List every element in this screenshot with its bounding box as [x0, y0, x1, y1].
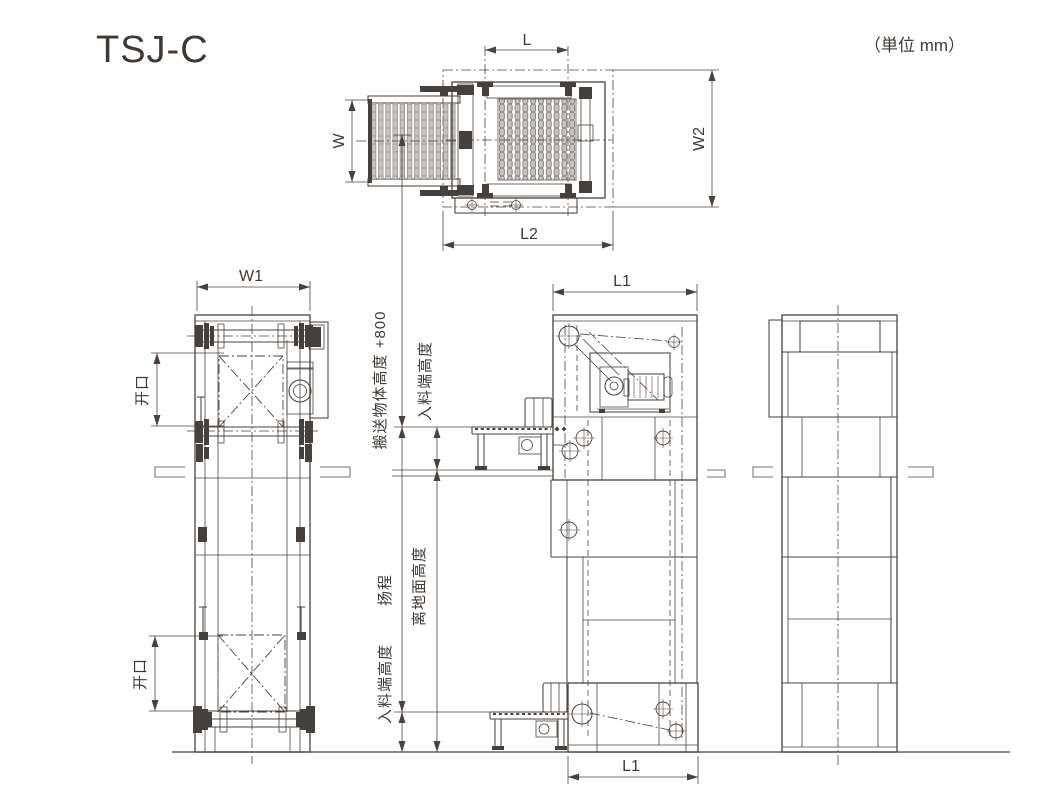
dim-label-l1-top: L1 — [613, 273, 631, 290]
dim-label-l1-bottom: L1 — [622, 758, 640, 775]
floor-bracket-left — [155, 467, 185, 477]
dim-label-infeed-lower: 入料端高度 — [377, 644, 394, 724]
dim-label-w1: W1 — [239, 268, 263, 285]
drawing-sheet: TSJ-C （単位 mm） — [0, 0, 1050, 795]
dim-label-lift: 扬程 — [377, 574, 394, 606]
dim-label-conveyed-height: 搬送物体高度 +800 — [372, 311, 389, 450]
unit-note: （単位 mm） — [864, 36, 965, 55]
platform-rollers — [498, 99, 576, 180]
side-view: L1 L1 搬送物体高度 +800 入料端高度 扬程 离地面高度 入料端高度 — [372, 135, 725, 784]
right-view — [753, 305, 933, 767]
front-view: W1 开口 开口 — [132, 268, 350, 764]
plan-view: L W W2 L2 — [331, 32, 719, 251]
drawing-title: TSJ-C — [96, 29, 209, 71]
dim-label-l2: L2 — [520, 226, 538, 243]
floor-bracket-rv-left — [753, 467, 773, 477]
lower-opening-cross — [218, 635, 285, 712]
dim-label-floor-height: 离地面高度 — [411, 546, 428, 626]
dim-label-l: L — [523, 32, 532, 49]
upper-opening-cross — [219, 356, 283, 427]
dim-label-w2: W2 — [691, 127, 708, 151]
upper-conveyor — [472, 398, 553, 470]
dim-label-infeed-upper: 入料端高度 — [417, 341, 434, 421]
floor-bracket-right — [320, 467, 350, 477]
dim-label-opening-upper: 开口 — [134, 374, 151, 406]
floor-bracket-rv-right — [908, 467, 933, 477]
hoist-motor — [590, 353, 672, 413]
floor-bracket-mid-right — [707, 470, 725, 477]
lower-conveyor — [490, 683, 568, 750]
dim-label-w: W — [331, 133, 348, 149]
dim-label-opening-lower: 开口 — [132, 658, 149, 690]
